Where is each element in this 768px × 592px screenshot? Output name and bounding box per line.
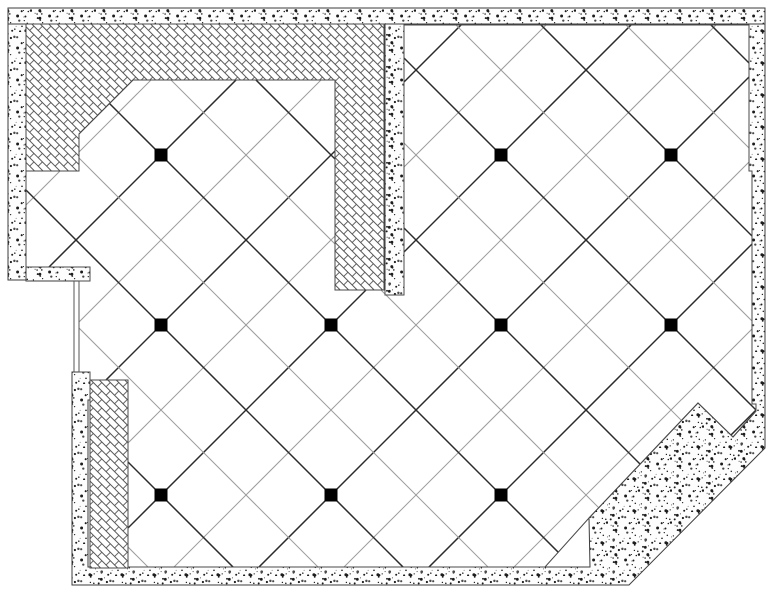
top-wall <box>8 8 765 24</box>
floor-plan-canvas <box>0 0 768 592</box>
column-marker <box>325 489 338 502</box>
column-marker <box>665 319 678 332</box>
column-marker <box>495 149 508 162</box>
column-marker <box>155 489 168 502</box>
door-partition <box>74 281 79 372</box>
column-marker <box>495 489 508 502</box>
column-marker <box>155 319 168 332</box>
interior-partition-wall <box>385 24 404 295</box>
column-marker <box>665 149 678 162</box>
floor-plan-svg <box>0 0 768 592</box>
brick-hatch-lower-left <box>90 380 128 568</box>
tile-grid-line-major <box>416 0 768 592</box>
perimeter-wall-right-bottom-left <box>72 8 765 585</box>
column-marker <box>325 319 338 332</box>
column-marker <box>495 319 508 332</box>
left-wall-return-stub <box>26 267 90 281</box>
brick-hatch-upper-left <box>26 24 384 290</box>
left-upper-wall <box>8 8 26 280</box>
column-marker <box>155 149 168 162</box>
